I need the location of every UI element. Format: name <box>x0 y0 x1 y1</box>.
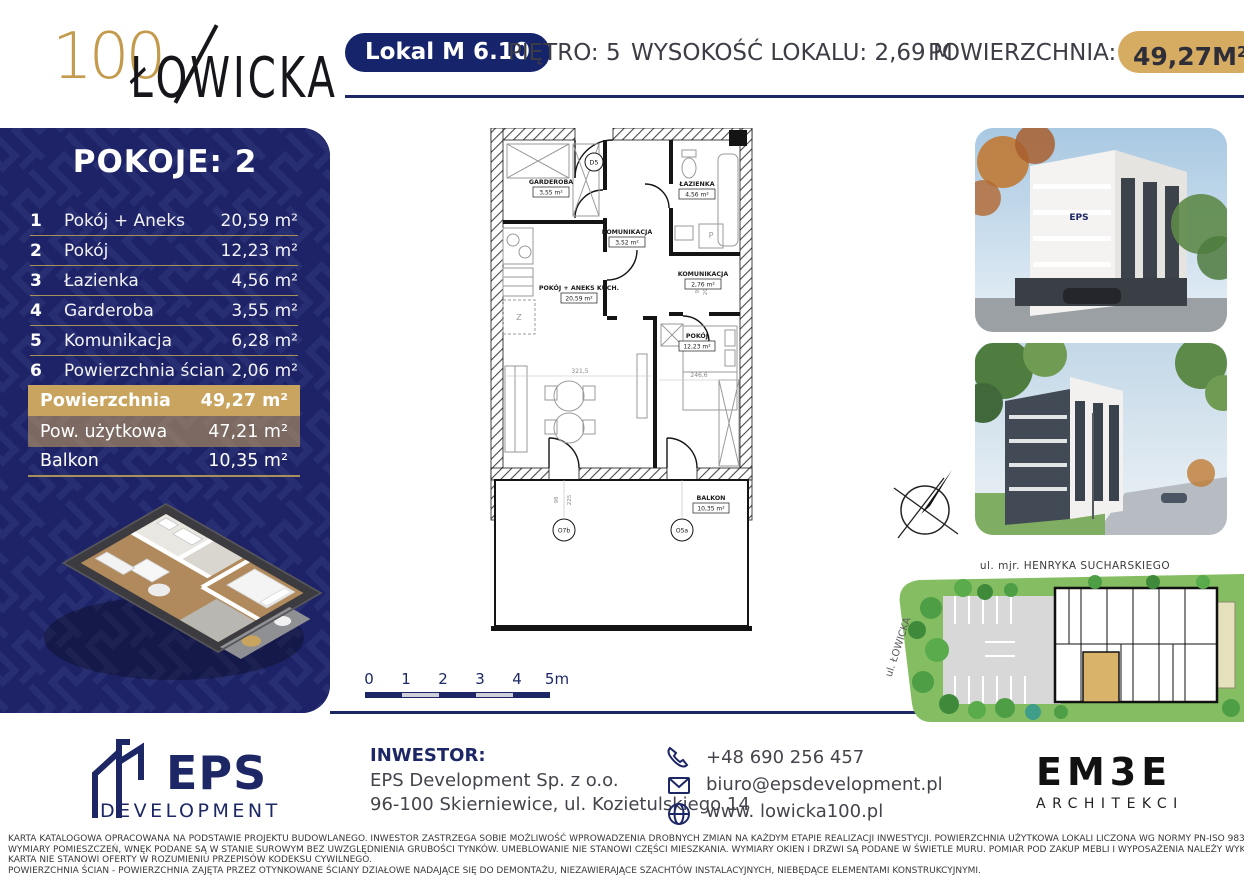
total-area-badge: 49,27M2 <box>1118 31 1244 73</box>
street-label-top: ul. mjr. HENRYKA SUCHARSKIEGO <box>980 560 1170 572</box>
room-label-lazienka: ŁAZIENKA4,56 m² <box>678 181 715 199</box>
floor-label: PIĘTRO: 5 <box>508 40 621 66</box>
svg-text:BALKON: BALKON <box>697 495 726 502</box>
logo-brand-name: ŁOWICKA <box>130 46 338 111</box>
contact-icons <box>665 744 693 828</box>
total-area-superscript: 2 <box>1237 43 1244 61</box>
svg-text:225: 225 <box>567 494 573 505</box>
room-name: Pokój + Aneks <box>64 211 221 231</box>
room-number: 1 <box>30 211 64 231</box>
room-area: 6,28 m² <box>231 331 298 351</box>
scale-tick: 2 <box>438 670 448 688</box>
phone-icon <box>669 748 688 767</box>
eps-development-logo: EPS DEVELOPMENT <box>88 738 338 826</box>
room-number: 4 <box>30 301 64 321</box>
room-label-balkon: BALKON10,35 m² <box>693 495 729 513</box>
room-name: Łazienka <box>64 271 231 291</box>
plan-scale-bar: 0 1 2 3 4 5m <box>365 670 565 702</box>
room-name: Powierzchnia ścian <box>64 361 231 381</box>
apartment-card: 100 ŁOWICKA Lokal M 6.10 PIĘTRO: 5 WYSOK… <box>0 0 1244 880</box>
room-number: 5 <box>30 331 64 351</box>
eps-sublabel: DEVELOPMENT <box>100 800 281 822</box>
room-name: Komunikacja <box>64 331 231 351</box>
eps-wordmark: EPS <box>166 746 267 800</box>
legal-disclaimer: KARTA KATALOGOWA OPRACOWANA NA PODSTAWIE… <box>8 834 1240 876</box>
sink-symbol: Z <box>516 313 522 322</box>
iso-floorplan-render <box>8 480 324 718</box>
total-area-value: 49,27M <box>1133 42 1237 71</box>
room-list-panel: POKOJE: 2 1Pokój + Aneks20,59 m² 2Pokój1… <box>0 128 330 713</box>
svg-text:3,52 m²: 3,52 m² <box>615 240 639 247</box>
summary-label: Powierzchnia <box>40 391 171 411</box>
email-address[interactable]: biuro@epsdevelopment.pl <box>706 774 943 795</box>
table-row: 6Powierzchnia ścian2,06 m² <box>30 356 298 386</box>
balcony-slab <box>491 626 752 631</box>
entrance-door-label: D5 <box>589 159 598 167</box>
investor-label: INWESTOR: <box>370 745 486 766</box>
svg-text:12,23 m²: 12,23 m² <box>683 344 711 351</box>
envelope-icon <box>669 778 689 793</box>
svg-text:KOMUNIKACJA: KOMUNIKACJA <box>602 229 653 236</box>
svg-text:POKÓJ: POKÓJ <box>686 331 708 340</box>
rooms-count-title: POKOJE: 2 <box>0 144 330 180</box>
svg-text:246,6: 246,6 <box>690 372 707 379</box>
svg-text:2,76 m²: 2,76 m² <box>691 282 715 289</box>
svg-text:20,59 m²: 20,59 m² <box>565 296 593 303</box>
table-row: 2Pokój12,23 m² <box>30 236 298 266</box>
globe-icon <box>669 804 689 824</box>
embe-wordmark: EM3E <box>1036 750 1226 794</box>
area-summary: Powierzchnia49,27 m² Pow. użytkowa47,21 … <box>28 385 300 477</box>
room-label-garderoba: GARDEROBA3,55 m² <box>529 179 573 197</box>
svg-text:KOMUNIKACJA: KOMUNIKACJA <box>678 271 729 278</box>
website-url[interactable]: www. lowicka100.pl <box>706 801 883 822</box>
svg-text:GARDEROBA: GARDEROBA <box>529 179 573 186</box>
legal-line: WYMIARY POMIESZCZEŃ, WNĘK PODANE SĄ W ST… <box>8 845 1240 856</box>
table-row: 3Łazienka4,56 m² <box>30 266 298 296</box>
compass-icon <box>886 464 964 552</box>
room-label-komunikacja-1: KOMUNIKACJA3,52 m² <box>602 229 653 247</box>
window-label: O5a <box>676 528 689 535</box>
room-label-pokoj-aneks: POKÓJ + ANEKS KUCH.20,59 m² <box>539 283 619 303</box>
legal-line: KARTA KATALOGOWA OPRACOWANA NA PODSTAWIE… <box>8 834 1240 845</box>
table-row: 1Pokój + Aneks20,59 m² <box>30 206 298 236</box>
room-number: 6 <box>30 361 64 381</box>
summary-value: 10,35 m² <box>208 451 288 471</box>
logo-100-lowicka: 100 ŁOWICKA <box>52 16 332 108</box>
summary-label: Balkon <box>40 451 99 471</box>
room-name: Pokój <box>64 241 221 261</box>
room-area: 12,23 m² <box>221 241 298 261</box>
building-photo-2 <box>975 343 1227 535</box>
summary-label: Pow. użytkowa <box>40 422 167 442</box>
floor-plan: D5 O7b O5a 321,5 246,6 92 208 98 225 P Z… <box>485 128 762 665</box>
room-name: Garderoba <box>64 301 231 321</box>
embe-sublabel: ARCHITEKCI <box>1036 796 1226 812</box>
summary-value: 49,27 m² <box>201 391 288 411</box>
highlighted-unit <box>1083 652 1119 702</box>
room-area: 2,06 m² <box>231 361 298 381</box>
summary-row-usable: Pow. użytkowa47,21 m² <box>28 416 300 447</box>
window-label: O7b <box>558 528 571 535</box>
svg-text:3,55 m²: 3,55 m² <box>539 190 563 197</box>
room-label-pokoj: POKÓJ12,23 m² <box>679 331 715 351</box>
svg-text:4,56 m²: 4,56 m² <box>685 192 709 199</box>
legal-line: KARTA NIE STANOWI OFERTY W ROZUMIENIU PR… <box>8 855 1240 866</box>
building-photo-1: EPS <box>975 128 1227 332</box>
site-plan: ul. mjr. HENRYKA SUCHARSKIEGO ul. ŁOWICK… <box>885 556 1244 722</box>
scale-tick: 3 <box>475 670 485 688</box>
svg-text:EPS: EPS <box>1069 213 1088 223</box>
scale-tick: 0 <box>364 670 374 688</box>
svg-text:321,5: 321,5 <box>571 368 588 375</box>
room-area: 4,56 m² <box>231 271 298 291</box>
phone-number[interactable]: +48 690 256 457 <box>706 747 864 768</box>
svg-text:ŁAZIENKA: ŁAZIENKA <box>678 181 714 188</box>
room-label-komunikacja-2: KOMUNIKACJA2,76 m² <box>678 271 729 289</box>
summary-row-balcony: Balkon10,35 m² <box>28 447 300 477</box>
table-row: 5Komunikacja6,28 m² <box>30 326 298 356</box>
summary-row-total: Powierzchnia49,27 m² <box>28 385 300 416</box>
room-area: 3,55 m² <box>231 301 298 321</box>
svg-text:POKÓJ + ANEKS KUCH.: POKÓJ + ANEKS KUCH. <box>539 283 619 292</box>
room-table: 1Pokój + Aneks20,59 m² 2Pokój12,23 m² 3Ł… <box>30 206 298 386</box>
room-number: 3 <box>30 271 64 291</box>
scale-tick: 1 <box>401 670 411 688</box>
header-divider <box>345 95 1244 98</box>
legal-line: POWIERZCHNIA ŚCIAN - POWIERZCHNIA ZAJĘTA… <box>8 866 1240 877</box>
scale-tick: 4 <box>512 670 522 688</box>
svg-text:10,35 m²: 10,35 m² <box>697 506 725 513</box>
svg-text:98: 98 <box>554 496 560 503</box>
washer-symbol: P <box>709 231 714 240</box>
summary-value: 47,21 m² <box>208 422 288 442</box>
room-area: 20,59 m² <box>221 211 298 231</box>
room-number: 2 <box>30 241 64 261</box>
embe-architekci-logo: EM3E ARCHITEKCI <box>1036 750 1226 812</box>
unit-height-label: WYSOKOŚĆ LOKALU: 2,69 M <box>631 40 953 66</box>
investor-name: EPS Development Sp. z o.o. <box>370 770 619 791</box>
table-row: 4Garderoba3,55 m² <box>30 296 298 326</box>
area-label: POWIERZCHNIA: <box>928 40 1116 66</box>
scale-tick: 5m <box>545 670 569 688</box>
